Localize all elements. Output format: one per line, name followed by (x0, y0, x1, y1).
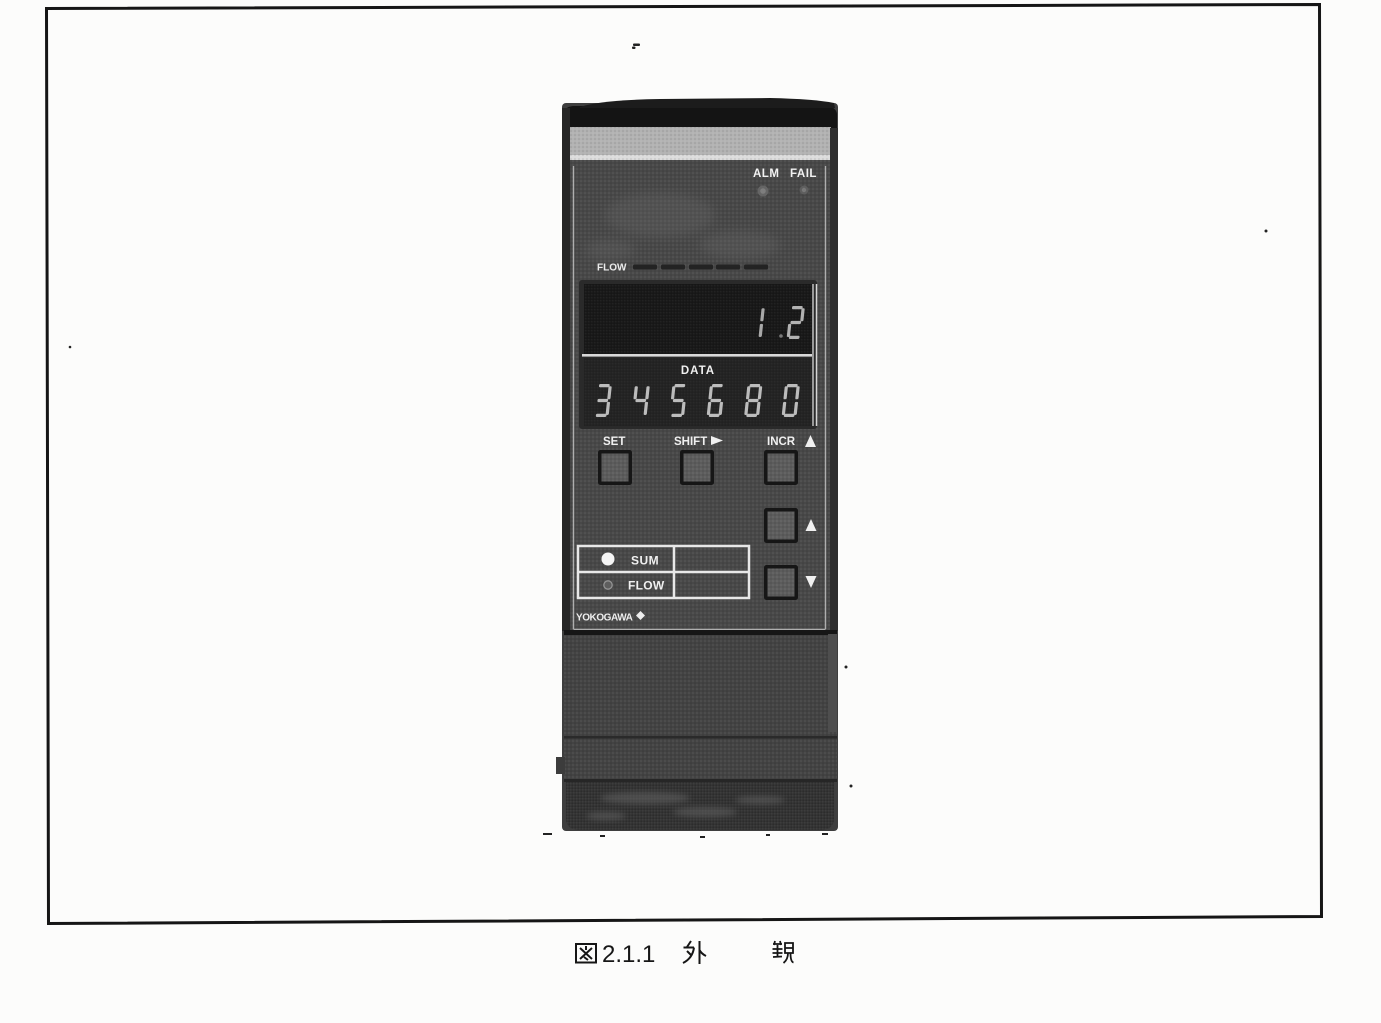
svg-text:FLOW: FLOW (628, 579, 665, 593)
svg-text:FAIL: FAIL (790, 168, 817, 180)
svg-text:FLOW: FLOW (597, 263, 627, 274)
svg-text:DATA: DATA (681, 365, 715, 377)
svg-text:SHIFT: SHIFT (674, 436, 707, 448)
svg-text:YOKOGAWA: YOKOGAWA (576, 613, 633, 624)
svg-text:2.1.1: 2.1.1 (602, 941, 655, 968)
svg-text:SUM: SUM (631, 554, 659, 568)
svg-text:ALM: ALM (753, 168, 779, 180)
svg-text:INCR: INCR (767, 436, 796, 448)
svg-text:SET: SET (603, 436, 625, 448)
